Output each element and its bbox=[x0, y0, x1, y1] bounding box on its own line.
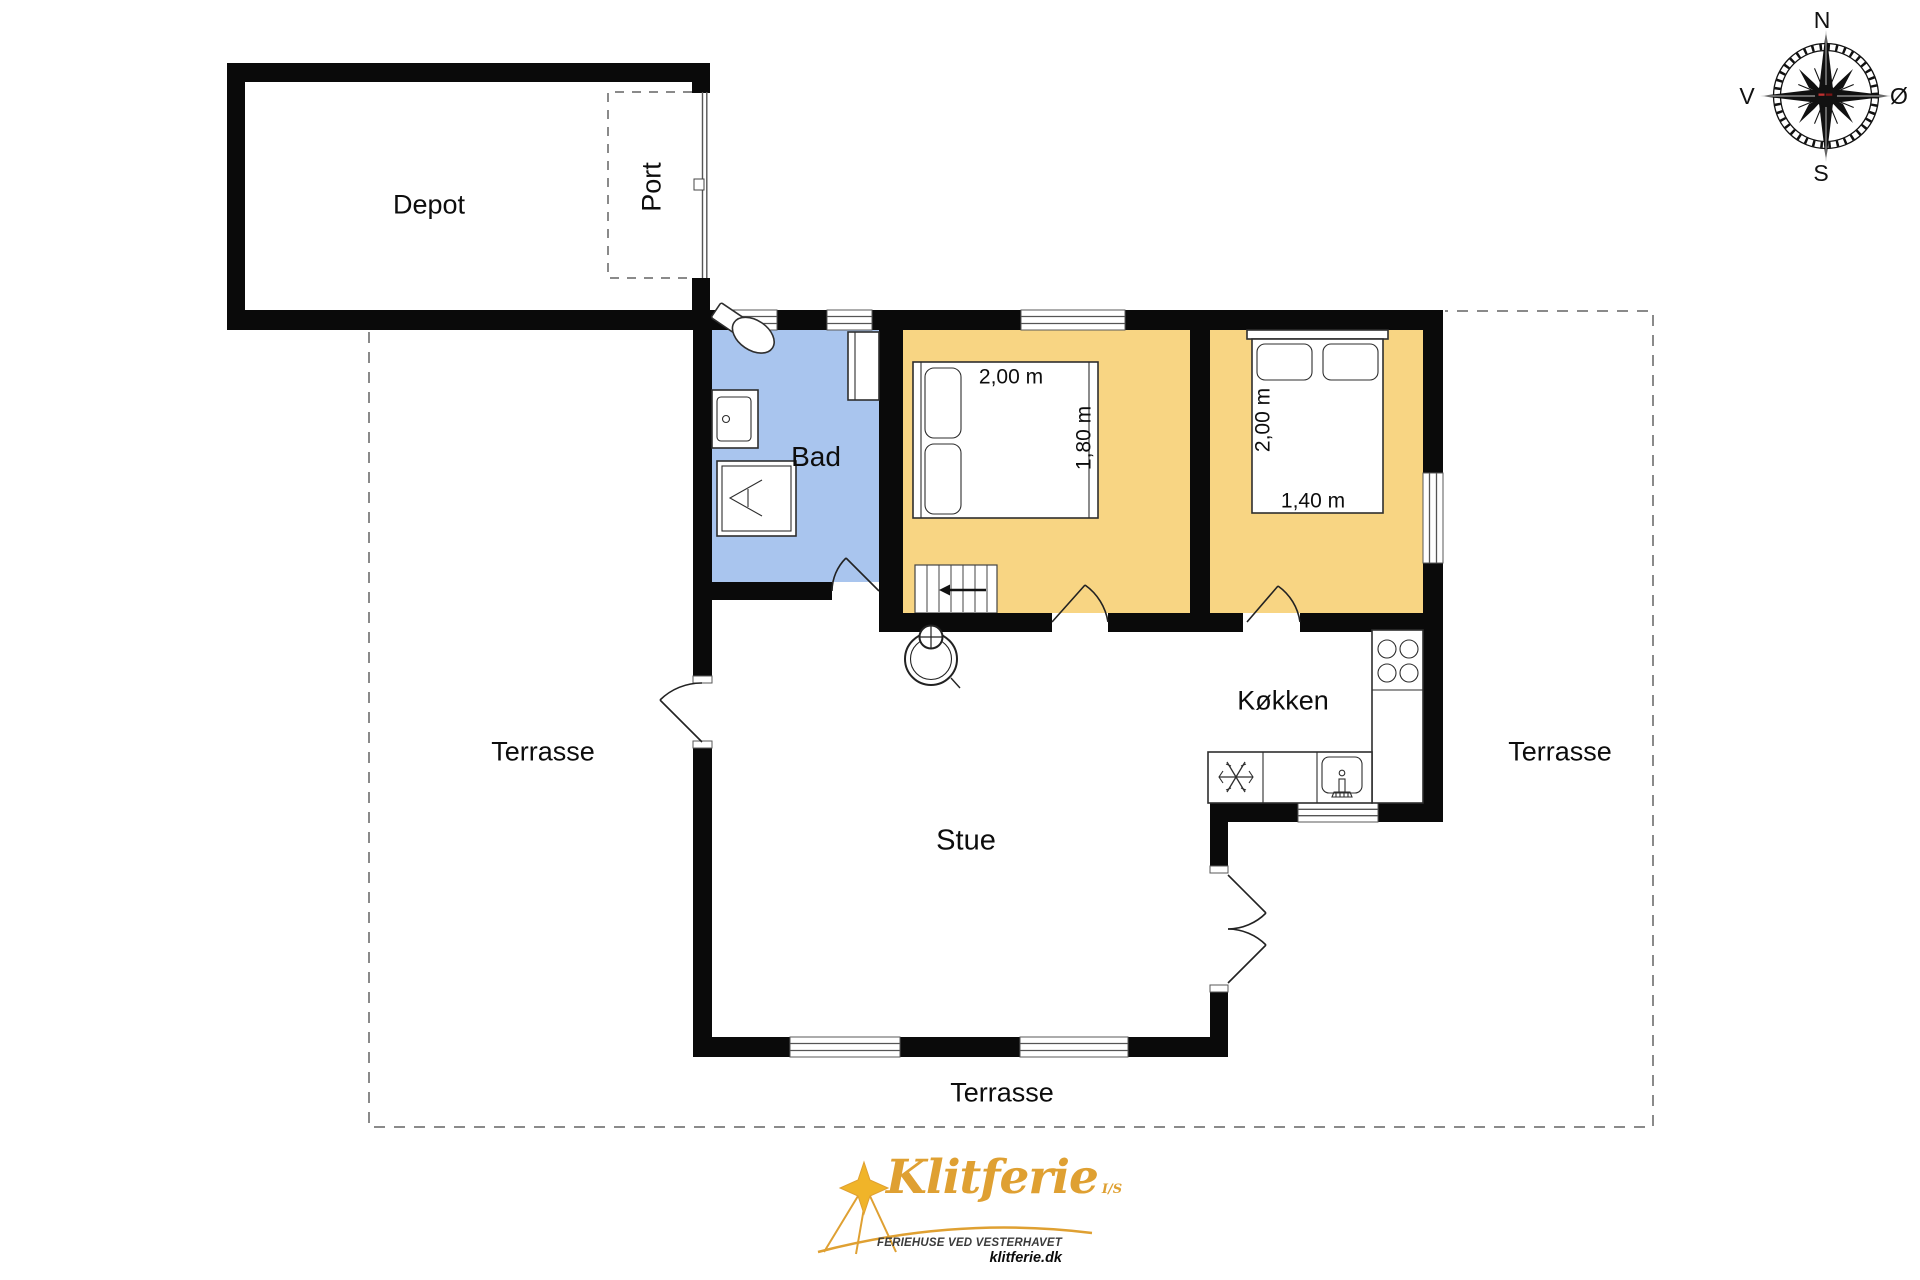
stue-east-french-door-upper bbox=[1228, 875, 1266, 929]
shower bbox=[717, 461, 796, 536]
compass-east-label: Ø bbox=[1890, 83, 1908, 109]
dim-bed1-width: 1,80 m bbox=[1074, 406, 1095, 470]
wall-house-west-lower bbox=[693, 742, 712, 1057]
wall-bedrooms-south-3 bbox=[1300, 613, 1443, 632]
wall-bedrooms-south-2 bbox=[1108, 613, 1243, 632]
wall-house-east bbox=[1423, 310, 1443, 822]
logo-company-suffix: I/S bbox=[1102, 1182, 1122, 1197]
logo-brand-name: Klitferie bbox=[886, 1150, 1098, 1205]
window-stue-south-1 bbox=[790, 1037, 900, 1057]
kitchen-fixtures bbox=[1208, 630, 1423, 803]
logo-tagline: FERIEHUSE VED VESTERHAVET bbox=[877, 1237, 1062, 1249]
garage-door-handle bbox=[694, 179, 704, 190]
floor-plan-page: N Ø S V Depot Port Bad Køkken Stue Terra… bbox=[0, 0, 1920, 1280]
compass-watermark-mark bbox=[1819, 94, 1825, 96]
wood-stove bbox=[905, 626, 960, 689]
dim-bed1-length: 2,00 m bbox=[979, 367, 1043, 388]
window-bedroom2-east bbox=[1423, 473, 1443, 563]
window-kitchen-south bbox=[1298, 803, 1378, 822]
wall-depot-north bbox=[227, 63, 710, 82]
wall-stue-east-upper bbox=[1210, 822, 1228, 873]
wall-port-southeast-block bbox=[692, 278, 710, 312]
compass-south-label: S bbox=[1813, 160, 1828, 186]
room-label-stue: Stue bbox=[936, 827, 996, 856]
logo-star-icon bbox=[840, 1162, 888, 1214]
compass-west-label: V bbox=[1739, 83, 1755, 109]
compass-rose: N Ø S V bbox=[1739, 7, 1908, 186]
room-label-depot: Depot bbox=[393, 192, 465, 219]
dim-bed2-width: 1,40 m bbox=[1281, 491, 1345, 512]
room-label-kokken: Køkken bbox=[1237, 688, 1329, 715]
compass-north-label: N bbox=[1814, 7, 1831, 33]
compass-watermark-mark-2 bbox=[1826, 94, 1833, 96]
room-label-terrasse-west: Terrasse bbox=[491, 739, 595, 766]
window-bedroom1-north bbox=[1021, 310, 1125, 330]
wood-stove-handle bbox=[951, 678, 960, 688]
bathroom-sink bbox=[712, 390, 758, 448]
compass-hub bbox=[1815, 85, 1837, 107]
wall-stue-south bbox=[693, 1037, 1228, 1057]
bed2-headboard bbox=[1247, 330, 1388, 339]
wall-bedrooms-south-1 bbox=[879, 613, 1052, 632]
bathroom-closet bbox=[848, 332, 879, 400]
room-label-terrasse-south: Terrasse bbox=[950, 1080, 1054, 1107]
staircase bbox=[915, 565, 997, 613]
room-label-terrasse-east: Terrasse bbox=[1508, 739, 1612, 766]
wall-bath-bedroom1 bbox=[879, 330, 903, 632]
dim-bed2-length: 2,00 m bbox=[1253, 388, 1274, 452]
klitferie-logo: KlitferieI/S FERIEHUSE VED VESTERHAVET k… bbox=[800, 1148, 1080, 1273]
garage-door bbox=[694, 92, 707, 278]
wall-house-west-upper bbox=[693, 330, 712, 683]
window-bath-north-2 bbox=[827, 310, 872, 330]
room-label-port: Port bbox=[639, 162, 666, 212]
logo-website: klitferie.dk bbox=[989, 1250, 1062, 1266]
window-stue-south-2 bbox=[1020, 1037, 1128, 1057]
wall-depot-northeast-block bbox=[692, 63, 710, 93]
room-label-bad: Bad bbox=[791, 443, 841, 471]
wall-bedroom-divider bbox=[1190, 330, 1210, 632]
logo-brand-text: KlitferieI/S bbox=[886, 1150, 1122, 1205]
stue-west-terrace-door bbox=[660, 683, 702, 742]
wall-depot-west bbox=[227, 63, 245, 330]
wall-bath-south bbox=[712, 582, 832, 600]
wall-stue-east-lower bbox=[1210, 985, 1228, 1037]
stue-east-french-door-lower bbox=[1228, 929, 1266, 983]
